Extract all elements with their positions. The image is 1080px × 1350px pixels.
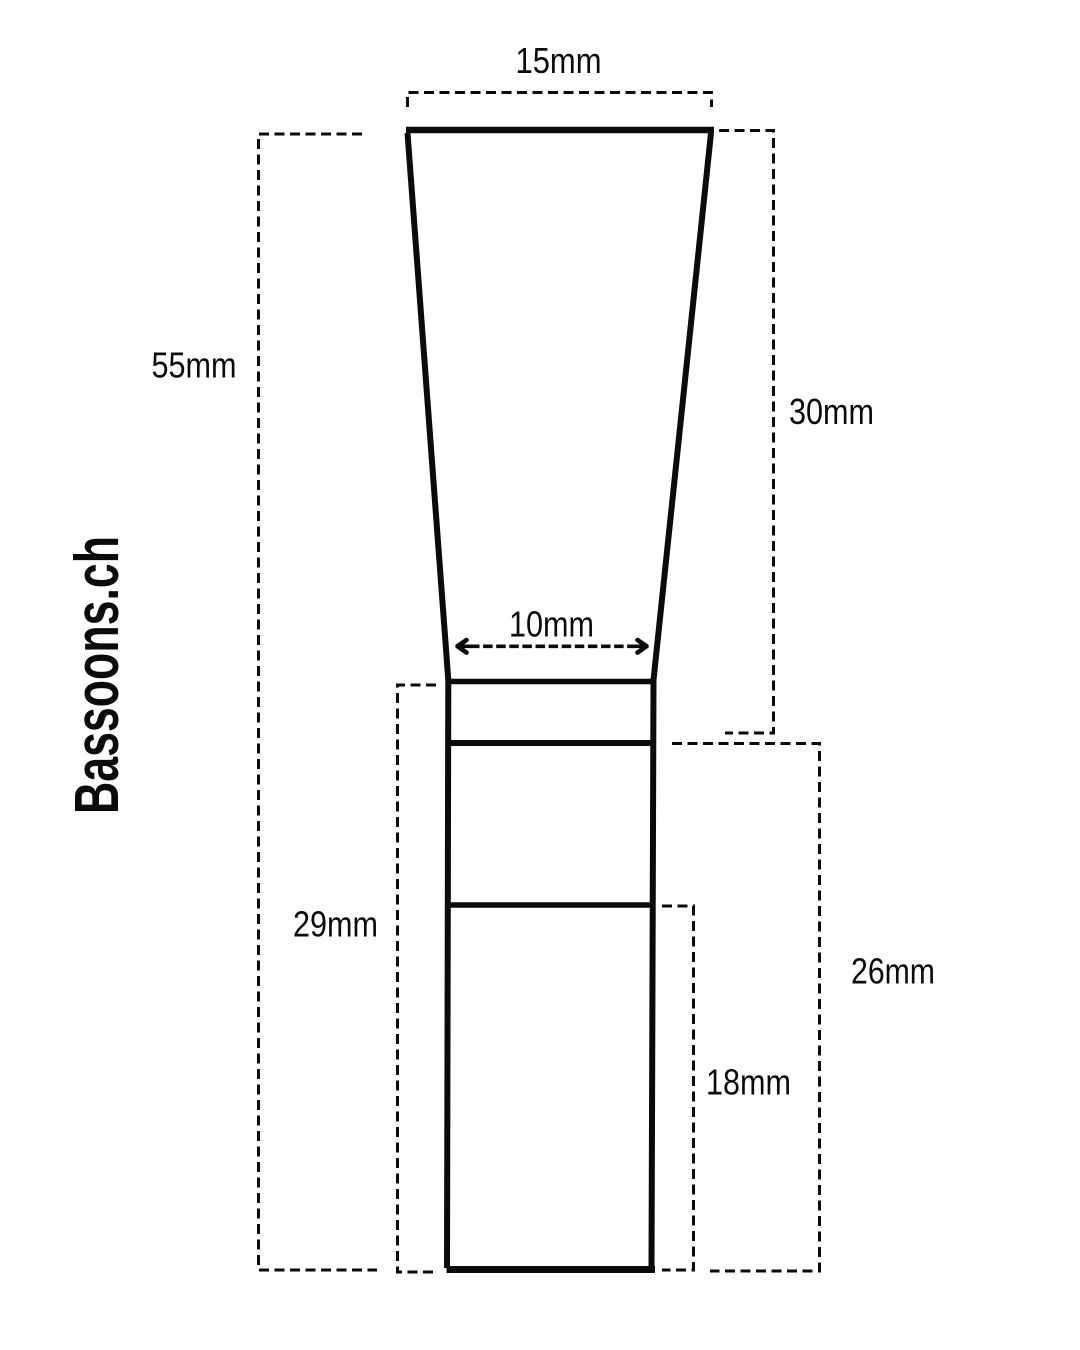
svg-text:29mm: 29mm: [293, 904, 378, 945]
svg-text:18mm: 18mm: [706, 1062, 791, 1103]
svg-text:55mm: 55mm: [152, 345, 237, 386]
svg-text:15mm: 15mm: [516, 40, 602, 81]
svg-text:10mm: 10mm: [509, 604, 594, 645]
svg-text:Bassoons.ch: Bassoons.ch: [63, 536, 132, 814]
svg-text:26mm: 26mm: [851, 951, 935, 992]
svg-text:30mm: 30mm: [789, 391, 874, 432]
